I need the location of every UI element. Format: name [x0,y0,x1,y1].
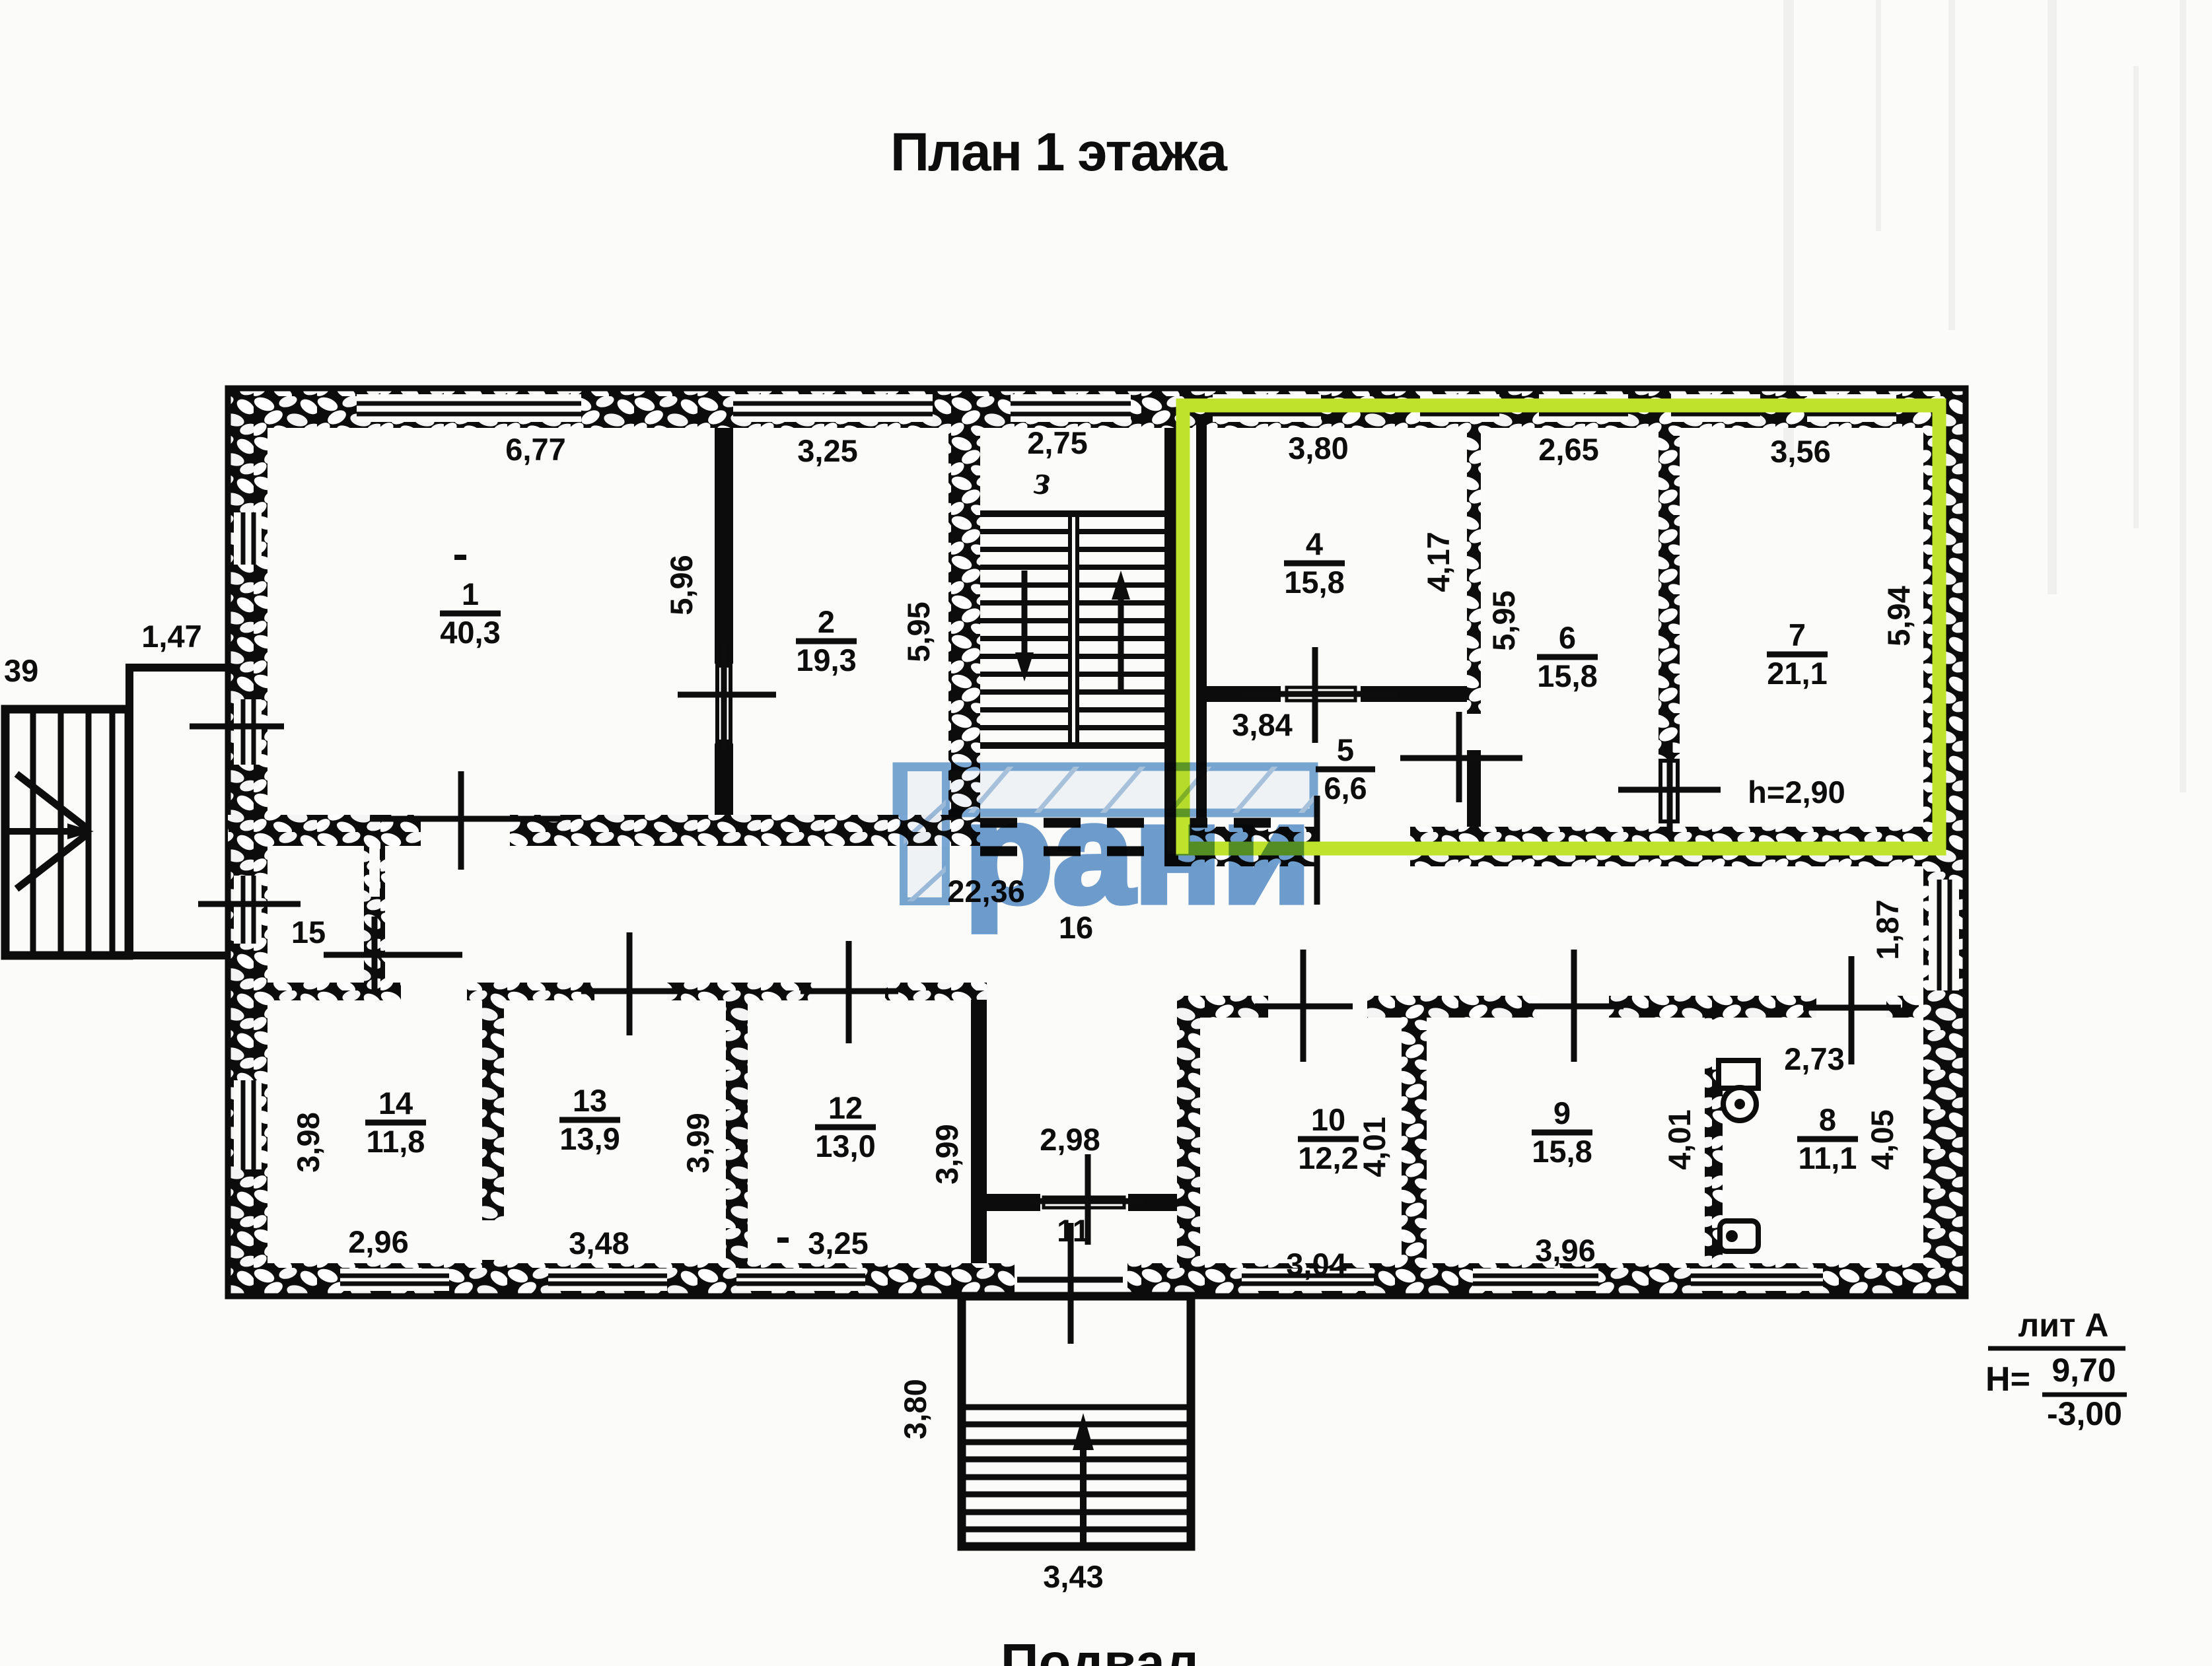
svg-text:лит А: лит А [2018,1307,2109,1344]
svg-text:4,01: 4,01 [1357,1117,1392,1177]
svg-text:3,80: 3,80 [898,1379,933,1439]
svg-text:9: 9 [1553,1095,1571,1130]
svg-text:9,70: 9,70 [2051,1352,2116,1389]
svg-text:4,01: 4,01 [1662,1109,1697,1169]
svg-text:3,99: 3,99 [929,1124,964,1184]
svg-text:2,75: 2,75 [1027,425,1087,460]
svg-text:3,99: 3,99 [680,1113,715,1173]
svg-text:14: 14 [378,1086,413,1121]
svg-text:5: 5 [1337,732,1354,767]
svg-text:3,43: 3,43 [1043,1559,1103,1594]
svg-text:12,2: 12,2 [1298,1140,1358,1175]
svg-text:13: 13 [573,1083,607,1118]
svg-text:5,94: 5,94 [1881,586,1916,646]
svg-text:4,17: 4,17 [1421,532,1456,592]
svg-text:2: 2 [818,604,835,639]
svg-text:4,05: 4,05 [1865,1109,1900,1169]
svg-text:Подвал: Подвал [1001,1633,1199,1666]
svg-text:15: 15 [291,915,326,950]
svg-text:Н=: Н= [1985,1360,2030,1399]
svg-text:3,80: 3,80 [1288,431,1348,466]
svg-text:2,98: 2,98 [1040,1122,1100,1157]
svg-text:10: 10 [1311,1102,1345,1137]
svg-text:1: 1 [462,576,479,611]
svg-text:5,95: 5,95 [901,602,936,662]
svg-text:1,47: 1,47 [141,619,201,654]
svg-text:2,73: 2,73 [1784,1041,1844,1076]
svg-text:h=2,90: h=2,90 [1748,775,1845,810]
svg-text:2,65: 2,65 [1538,432,1598,467]
svg-text:15,8: 15,8 [1284,565,1344,600]
svg-text:3,84: 3,84 [1232,707,1292,742]
svg-text:1,87: 1,87 [1870,899,1905,959]
svg-text:6,77: 6,77 [505,432,565,467]
svg-text:8: 8 [1819,1102,1836,1137]
svg-text:рани: рани [964,775,1311,932]
svg-text:6: 6 [1559,620,1576,655]
svg-text:6,6: 6,6 [1324,771,1367,806]
svg-text:3,25: 3,25 [808,1226,868,1261]
svg-text:План 1 этажа: План 1 этажа [890,122,1228,182]
svg-text:40,3: 40,3 [440,615,500,650]
svg-text:7: 7 [1789,617,1806,652]
svg-text:11: 11 [1057,1213,1090,1248]
svg-text:19,3: 19,3 [796,642,856,677]
svg-text:3,56: 3,56 [1770,434,1830,469]
svg-text:13,9: 13,9 [559,1121,620,1156]
svg-text:3,48: 3,48 [569,1226,629,1261]
svg-text:2,96: 2,96 [348,1224,408,1259]
svg-text:15,8: 15,8 [1537,658,1597,693]
svg-text:15,8: 15,8 [1532,1134,1592,1169]
svg-text:39: 39 [4,653,38,688]
svg-text:3,96: 3,96 [1535,1233,1595,1268]
svg-text:4: 4 [1306,526,1323,561]
svg-text:-3,00: -3,00 [2047,1395,2122,1432]
svg-text:13,0: 13,0 [815,1128,875,1163]
svg-text:3,04: 3,04 [1286,1247,1346,1282]
svg-text:11,8: 11,8 [367,1124,425,1159]
svg-text:11,1: 11,1 [1799,1140,1857,1175]
svg-text:21,1: 21,1 [1767,656,1827,691]
svg-text:3,25: 3,25 [797,433,857,468]
svg-text:12: 12 [828,1090,863,1125]
svg-text:з: з [1033,458,1050,503]
svg-text:5,95: 5,95 [1486,590,1521,650]
svg-text:5,96: 5,96 [664,555,699,615]
svg-text:3,98: 3,98 [291,1112,326,1172]
